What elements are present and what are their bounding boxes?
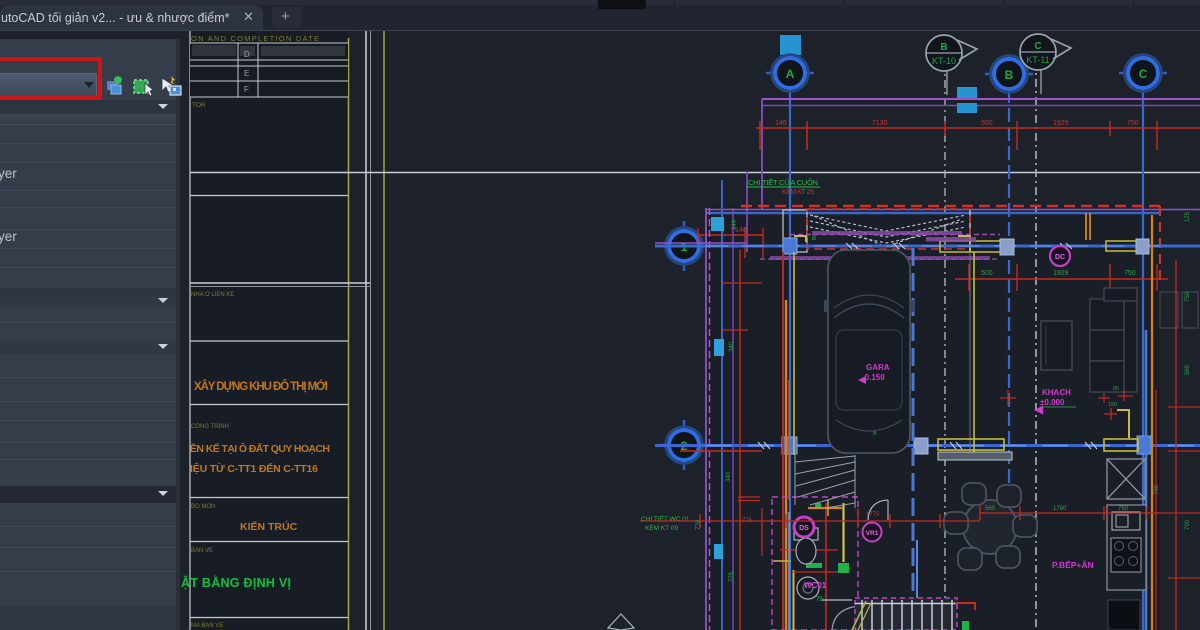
svg-text:KÈM KT 25: KÈM KT 25 [782, 187, 814, 196]
svg-text:KIẾN TRÚC: KIẾN TRÚC [240, 520, 298, 533]
svg-text:125: 125 [1185, 211, 1191, 222]
svg-text:BAN VE: BAN VE [191, 548, 213, 554]
svg-text:340: 340 [726, 471, 732, 482]
svg-text:B: B [940, 42, 947, 53]
svg-text:CONG TRINH: CONG TRINH [191, 424, 229, 430]
svg-text:DC: DC [1055, 254, 1065, 261]
svg-text:MA BAN VE: MA BAN VE [191, 623, 223, 629]
svg-text:750: 750 [1127, 120, 1139, 127]
svg-text:B: B [812, 236, 816, 242]
svg-text:CHI TIẾT CỬA CUỐN: CHI TIẾT CỬA CUỐN [748, 177, 818, 187]
svg-text:E: E [244, 69, 249, 78]
svg-text:1780: 1780 [1053, 506, 1067, 512]
svg-text:B: B [873, 431, 877, 437]
svg-text:D: D [244, 50, 250, 59]
svg-text:560: 560 [985, 506, 996, 512]
svg-text:340: 340 [729, 341, 735, 352]
svg-text:500: 500 [981, 270, 993, 277]
svg-text:TOR: TOR [192, 102, 206, 109]
svg-text:C: C [1139, 67, 1148, 81]
svg-text:DS: DS [799, 525, 809, 532]
svg-text:1929: 1929 [1053, 270, 1069, 277]
svg-text:700: 700 [1185, 519, 1191, 530]
svg-text:775: 775 [742, 518, 753, 524]
svg-text:725: 725 [729, 571, 735, 582]
svg-text:F: F [244, 85, 249, 94]
svg-text:780: 780 [1118, 506, 1129, 512]
svg-text:340: 340 [732, 219, 738, 230]
svg-text:NHA O LIEN KE: NHA O LIEN KE [191, 292, 234, 298]
svg-text:ON AND COMPLETION DATE: ON AND COMPLETION DATE [191, 34, 319, 43]
svg-text:GARA: GARA [866, 363, 890, 372]
svg-text:85: 85 [1113, 386, 1119, 392]
svg-text:VR1: VR1 [866, 530, 879, 537]
svg-text:KT-10: KT-10 [932, 56, 956, 66]
svg-text:146: 146 [775, 120, 787, 127]
svg-text:IỆU TỪ C-TT1 ĐẾN C-TT16: IỆU TỪ C-TT1 ĐẾN C-TT16 [190, 462, 318, 475]
svg-text:ẶT BẰNG ĐỊNH VỊ: ẶT BẰNG ĐỊNH VỊ [181, 575, 291, 590]
svg-text:XÂY DỰNG KHU ĐÔ THỊ MỚI: XÂY DỰNG KHU ĐÔ THỊ MỚI [194, 380, 328, 393]
svg-text:750: 750 [1124, 270, 1136, 277]
svg-text:KT-11: KT-11 [1026, 55, 1049, 65]
svg-text:1775: 1775 [866, 512, 880, 518]
svg-text:WC01: WC01 [804, 581, 827, 590]
svg-text:BO MON: BO MON [191, 504, 215, 510]
svg-text:770: 770 [696, 519, 702, 530]
svg-text:560: 560 [1185, 364, 1191, 375]
svg-text:750: 750 [1185, 291, 1191, 302]
svg-text:B: B [1005, 68, 1014, 82]
svg-text:500: 500 [981, 120, 993, 127]
svg-text:700: 700 [1154, 484, 1160, 495]
svg-text:1929: 1929 [1053, 120, 1069, 127]
svg-text:ỀN KẾ TẠI Ô ĐẤT QUY HOẠCH: ỀN KẾ TẠI Ô ĐẤT QUY HOẠCH [190, 442, 330, 455]
svg-text:7130: 7130 [872, 120, 888, 127]
svg-text:C: C [1034, 41, 1041, 52]
svg-text:KÈM KT 09: KÈM KT 09 [645, 523, 679, 532]
svg-text:A: A [786, 67, 795, 81]
svg-text:KHACH: KHACH [1042, 388, 1071, 397]
svg-text:150: 150 [1108, 402, 1117, 408]
svg-text:±0.000: ±0.000 [1040, 398, 1065, 407]
svg-text:P.BẾP+ĂN: P.BẾP+ĂN [1052, 560, 1094, 570]
